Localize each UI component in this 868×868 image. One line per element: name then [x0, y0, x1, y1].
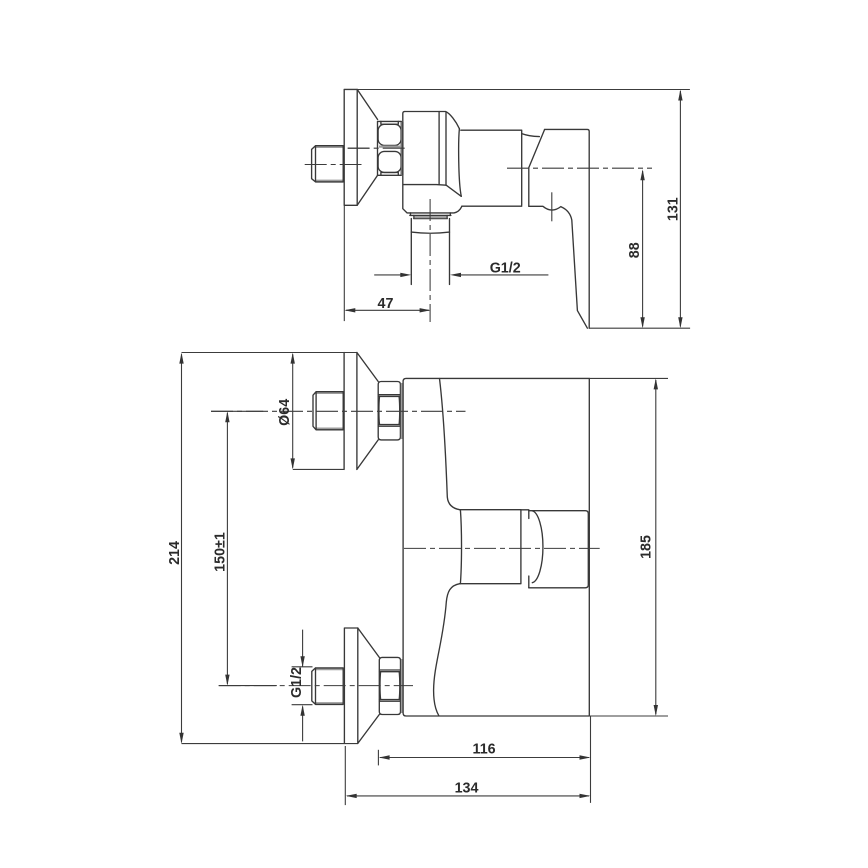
svg-text:G1/2: G1/2 — [289, 667, 305, 698]
svg-text:150±1: 150±1 — [212, 532, 228, 572]
svg-text:134: 134 — [455, 781, 479, 797]
svg-text:116: 116 — [473, 741, 496, 757]
svg-text:47: 47 — [378, 296, 394, 312]
svg-text:131: 131 — [665, 197, 681, 221]
svg-text:185: 185 — [639, 535, 655, 559]
svg-text:214: 214 — [167, 541, 183, 565]
svg-text:G1/2: G1/2 — [490, 260, 521, 276]
svg-text:88: 88 — [627, 242, 643, 258]
svg-text:Ø64: Ø64 — [277, 399, 293, 426]
